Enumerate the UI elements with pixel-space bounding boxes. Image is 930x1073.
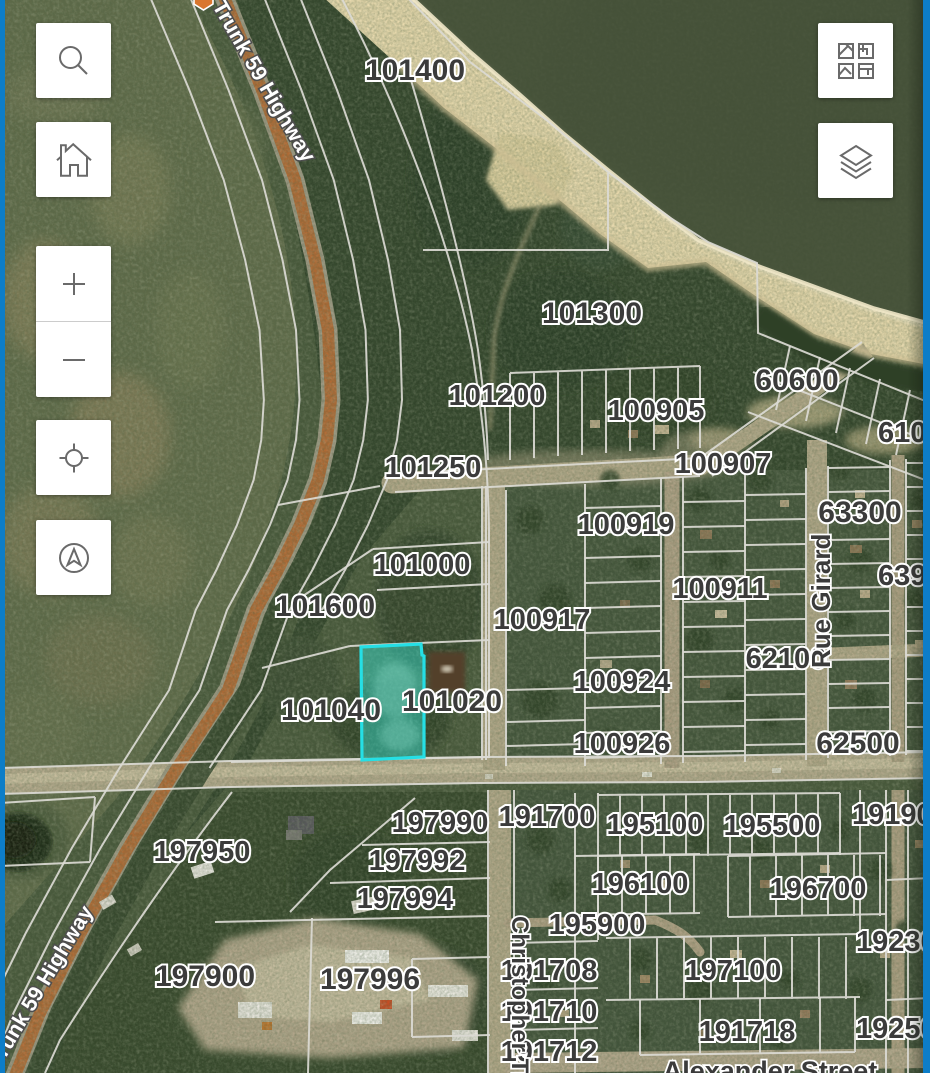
svg-text:Christopher Tr: Christopher Tr xyxy=(506,916,533,1073)
svg-text:100919: 100919 xyxy=(578,509,675,541)
svg-text:100926: 100926 xyxy=(574,728,671,760)
svg-text:Rue Girard: Rue Girard xyxy=(806,534,836,668)
svg-text:197950: 197950 xyxy=(154,836,251,868)
svg-text:100924: 100924 xyxy=(574,666,671,698)
svg-text:196100: 196100 xyxy=(592,868,689,900)
svg-text:100911: 100911 xyxy=(672,573,767,605)
svg-text:100917: 100917 xyxy=(494,604,591,636)
svg-text:196700: 196700 xyxy=(770,873,867,905)
svg-text:63300: 63300 xyxy=(818,496,901,529)
svg-text:195900: 195900 xyxy=(549,909,646,941)
svg-text:100907: 100907 xyxy=(675,448,772,480)
svg-text:101250: 101250 xyxy=(385,452,482,484)
svg-text:191718: 191718 xyxy=(699,1016,796,1048)
svg-text:101200: 101200 xyxy=(449,380,546,412)
svg-text:101400: 101400 xyxy=(365,54,465,87)
svg-text:191700: 191700 xyxy=(499,801,596,833)
svg-text:101020: 101020 xyxy=(402,685,502,718)
svg-text:60600: 60600 xyxy=(755,364,838,397)
svg-text:195100: 195100 xyxy=(607,809,704,841)
svg-text:Alexander Street: Alexander Street xyxy=(663,1056,878,1073)
svg-text:197996: 197996 xyxy=(320,963,420,996)
svg-text:100905: 100905 xyxy=(608,395,705,427)
svg-text:101000: 101000 xyxy=(374,549,471,581)
svg-text:197992: 197992 xyxy=(369,845,466,877)
svg-text:101600: 101600 xyxy=(275,590,375,623)
svg-text:195500: 195500 xyxy=(724,810,821,842)
svg-text:101300: 101300 xyxy=(542,297,642,330)
svg-text:197100: 197100 xyxy=(685,955,782,987)
svg-text:62500: 62500 xyxy=(816,727,899,760)
svg-text:197900: 197900 xyxy=(155,960,255,993)
svg-text:197990: 197990 xyxy=(392,807,489,839)
svg-text:101040: 101040 xyxy=(281,694,381,727)
svg-text:197994: 197994 xyxy=(357,883,454,915)
